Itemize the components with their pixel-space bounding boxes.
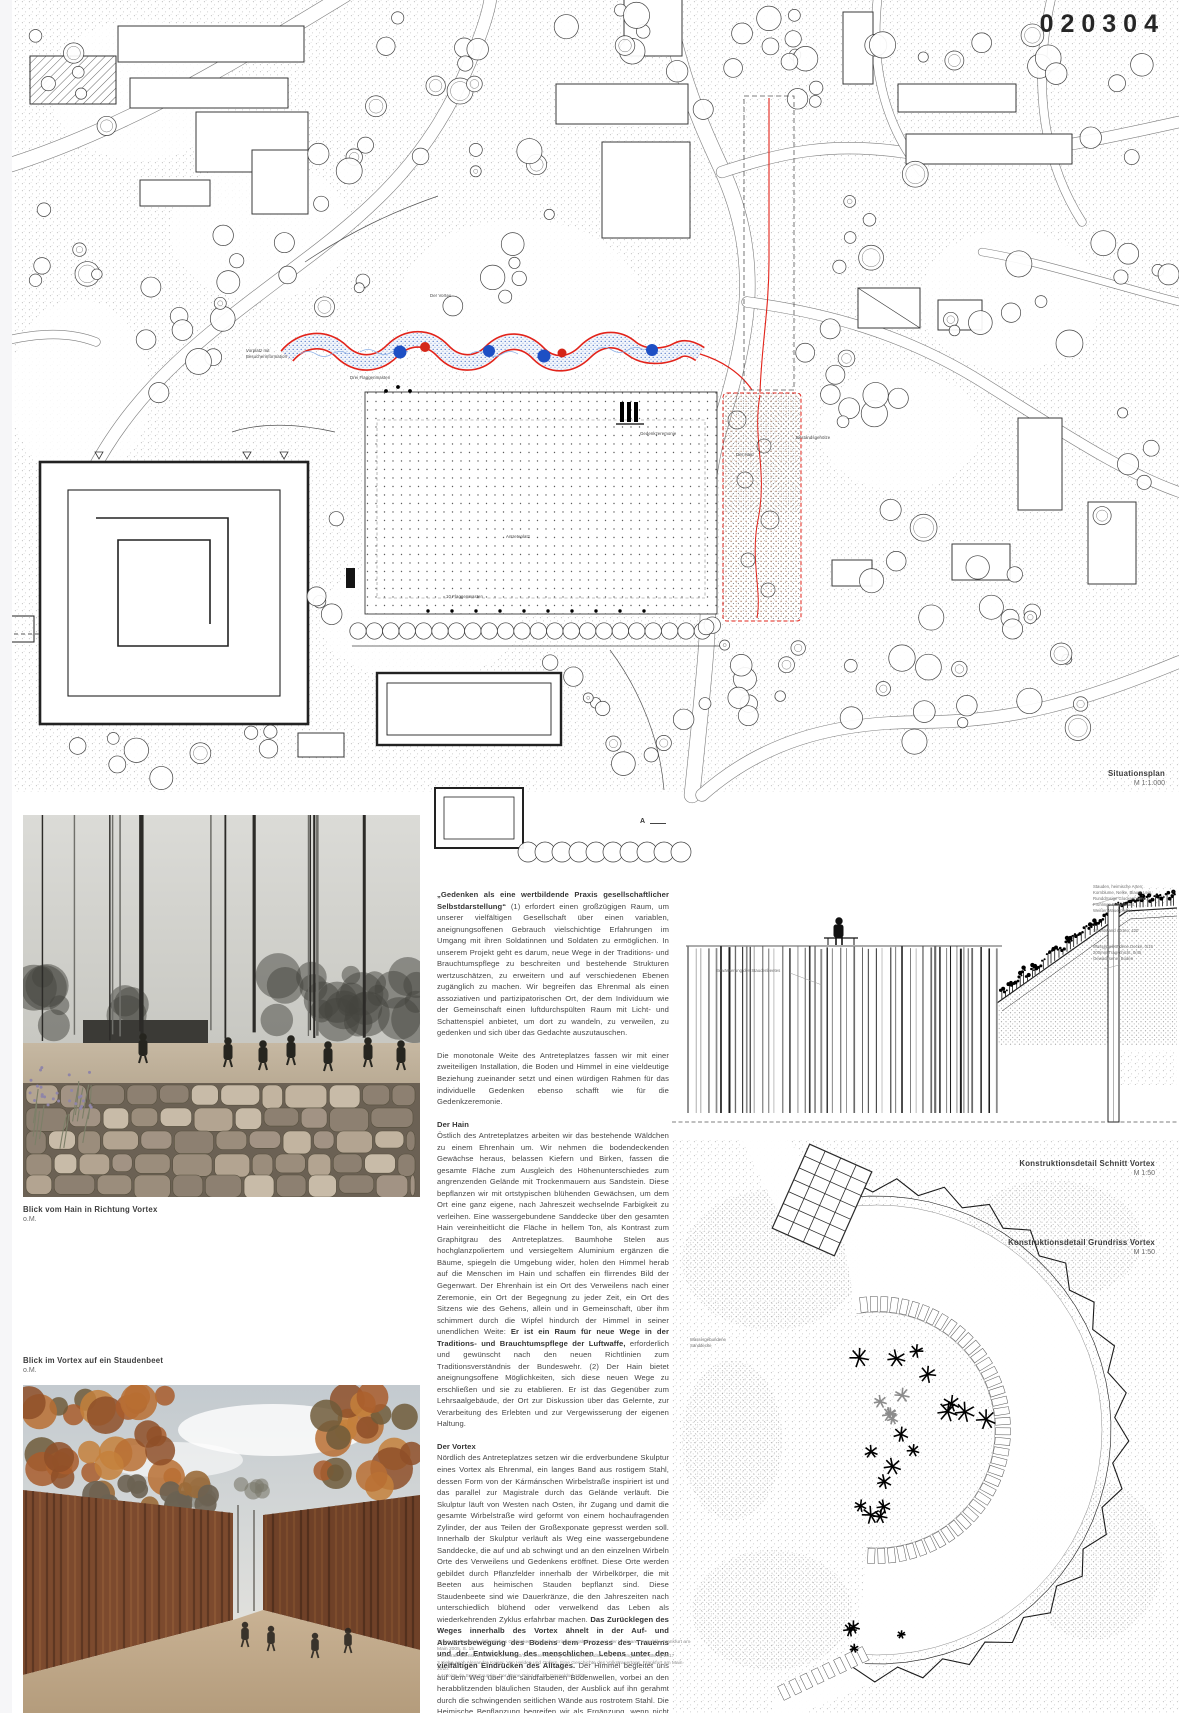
project-text-column: „Gedenken als eine wertbildende Praxis g…	[437, 889, 669, 1713]
label-zehn-flaggenmasten: 10 Flaggenmasten	[446, 594, 483, 600]
hain-area	[723, 393, 801, 621]
entry-code: 020304	[1040, 10, 1165, 39]
list-line: 1 Insa Eschenbach. Öffentliches Gedenken…	[437, 1640, 693, 1654]
photo2-caption: Blick im Vortex auf ein Staudenbeet o.M.	[23, 1356, 323, 1374]
site-plan-drawing	[0, 0, 1179, 880]
label-antreteplatz: Antreteplatz	[506, 534, 530, 540]
siteplan-caption: Situationsplan M 1:1.000	[995, 769, 1165, 787]
siteplan-caption-scale: M 1:1.000	[995, 780, 1165, 787]
article-paragraph: „Gedenken als eine wertbildende Praxis g…	[437, 889, 669, 1039]
siteplan-caption-title: Situationsplan	[995, 769, 1165, 778]
article-heading: Der Vortex	[437, 1441, 669, 1453]
grundriss-vortex-drawing	[672, 1140, 1179, 1713]
list-line: 4 Antoine de Saint-Exupéry. Der kleine P…	[437, 1674, 693, 1681]
label-vortex: Der Vortex	[430, 293, 451, 299]
photo1-caption-scale: o.M.	[23, 1216, 323, 1223]
grundriss-label-sanddecke: Wassergebundene Sanddecke	[690, 1337, 748, 1349]
section-marker-a: A	[640, 818, 645, 825]
article-paragraph: Die monotonale Weite des Antreteplatzes …	[437, 1050, 669, 1108]
label-vorplatz-1: Vorplatz mit	[246, 348, 269, 354]
photo2-caption-title: Blick im Vortex auf ein Staudenbeet	[23, 1356, 323, 1365]
competition-board: Der Vortex Drei Flaggenmasten Vorplatz m…	[0, 0, 1179, 1713]
article-paragraph: Östlich des Antreteplatzes arbeiten wir …	[437, 1130, 669, 1430]
footnotes: 1 Insa Eschenbach. Öffentliches Gedenken…	[437, 1640, 693, 1681]
photo1-caption-title: Blick vom Hain in Richtung Vortex	[23, 1205, 323, 1214]
bench-person	[824, 918, 858, 945]
schnitt-annotation-aufbau: Wassergebundene Decke, 0/16200mm Tragsch…	[1093, 944, 1177, 962]
article-heading: Der Hain	[437, 1119, 669, 1131]
lehrsaal-building	[377, 673, 561, 745]
grundriss-caption-title: Konstruktionsdetail Grundriss Vortex	[925, 1238, 1155, 1247]
photo1-caption: Blick vom Hain in Richtung Vortex o.M.	[23, 1205, 323, 1223]
label-drei-flaggenmasten: Drei Flaggenmasten	[350, 375, 390, 381]
schnitt-annotation-spundwand: Spundwand corten, 420	[1093, 928, 1177, 934]
rendering-vortex-view-image	[23, 1385, 420, 1713]
antreteplatz	[346, 385, 717, 614]
grundriss-caption: Konstruktionsdetail Grundriss Vortex M 1…	[925, 1238, 1155, 1256]
schnitt-annotation-planting: Stauden, heimische Arten:Kornblume, Nelk…	[1093, 884, 1177, 914]
list-line: 3 Siehe auch Alexandra Kaiser. Von Helde…	[437, 1661, 693, 1675]
list-line: 2 Zentrale Dienstvorschrift ZDv A-2600/1…	[437, 1654, 693, 1661]
label-gedenkzeremonie: Gedenkzeremonie	[640, 431, 676, 437]
photo2-caption-scale: o.M.	[23, 1367, 323, 1374]
label-der-hain: Der Hain	[736, 452, 754, 458]
rendering-hain-view-image	[23, 815, 420, 1197]
schnitt-annotation-bewaesserung: Bewässerung des Staudenbeetes	[716, 968, 794, 974]
label-vorplatz-2: Besucherinformation	[246, 354, 287, 360]
board-left-margin	[0, 0, 12, 1713]
section-marker-line	[650, 823, 666, 824]
list-line: Gewachsener Boden	[1093, 956, 1177, 962]
grundriss-caption-scale: M 1:50	[925, 1249, 1155, 1256]
south-structure	[435, 788, 523, 848]
list-line: Weißer Mauerpfeffer	[1093, 908, 1177, 914]
label-bestandsgehoelze: Bestandsgehölze	[796, 435, 830, 441]
museum-building	[0, 462, 308, 724]
